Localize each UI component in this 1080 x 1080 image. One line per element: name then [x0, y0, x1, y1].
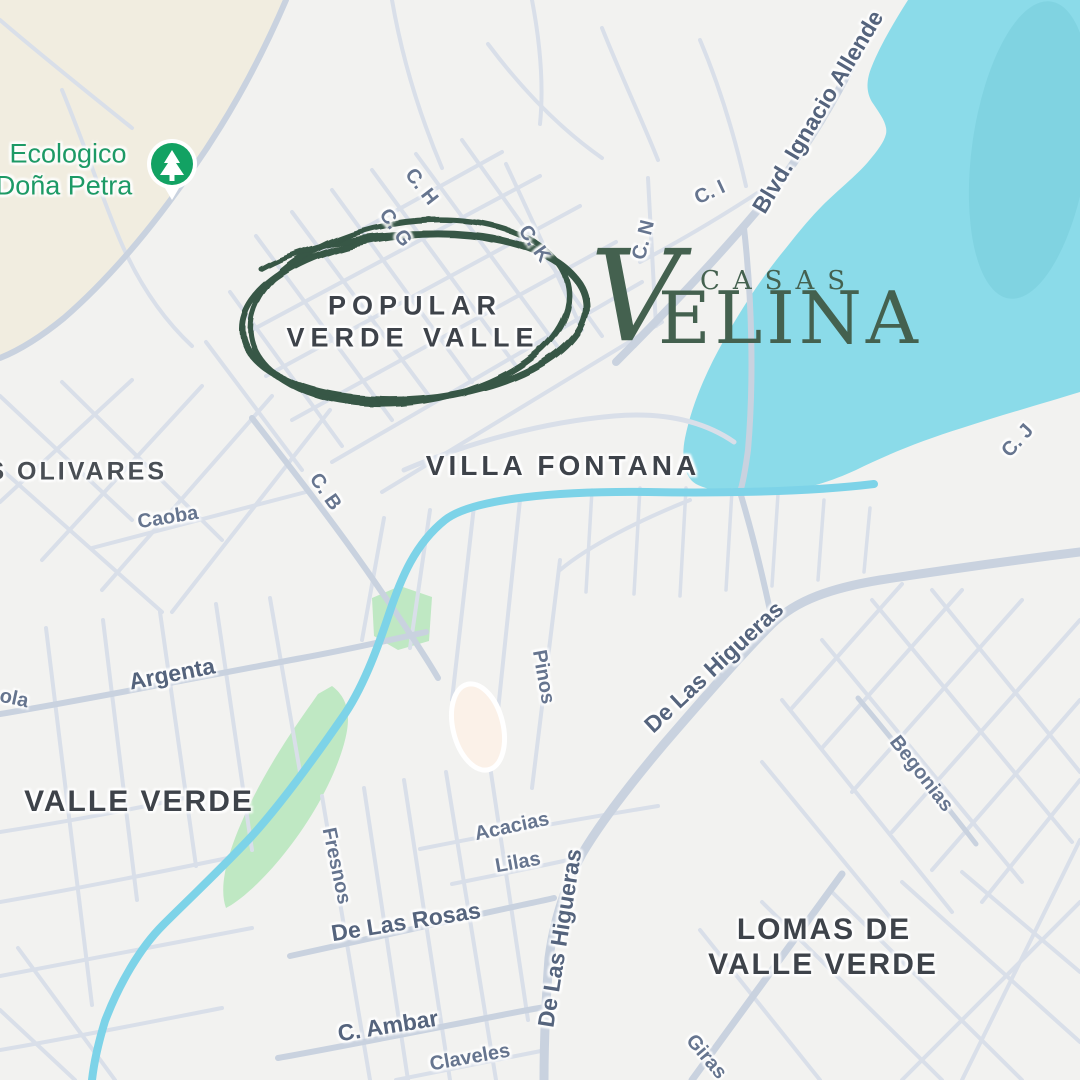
- area-label-popular-line2: VERDE VALLE: [286, 323, 539, 354]
- area-label-valle-verde: VALLE VERDE: [24, 785, 254, 819]
- map-canvas[interactable]: POPULARVERDE VALLEVILLA FONTANAOS OLIVAR…: [0, 0, 1080, 1080]
- area-label-popular-line1: POPULAR: [328, 291, 502, 322]
- area-label-lomas-line2: VALLE VERDE: [708, 948, 938, 982]
- park-pin[interactable]: [146, 138, 198, 202]
- area-label-lomas-line1: LOMAS DE: [737, 913, 911, 947]
- area-label-villa-fontana: VILLA FONTANA: [426, 450, 700, 482]
- tree-icon: [146, 138, 198, 202]
- area-label-los-olivares: OS OLIVARES: [0, 458, 167, 487]
- park-label-line2: Doña Petra: [0, 171, 132, 202]
- park-label-line1: Ecologico: [9, 139, 126, 170]
- brand-logo-word-elina: ELINA: [658, 282, 922, 354]
- brand-logo: CASAS V ELINA: [560, 246, 930, 386]
